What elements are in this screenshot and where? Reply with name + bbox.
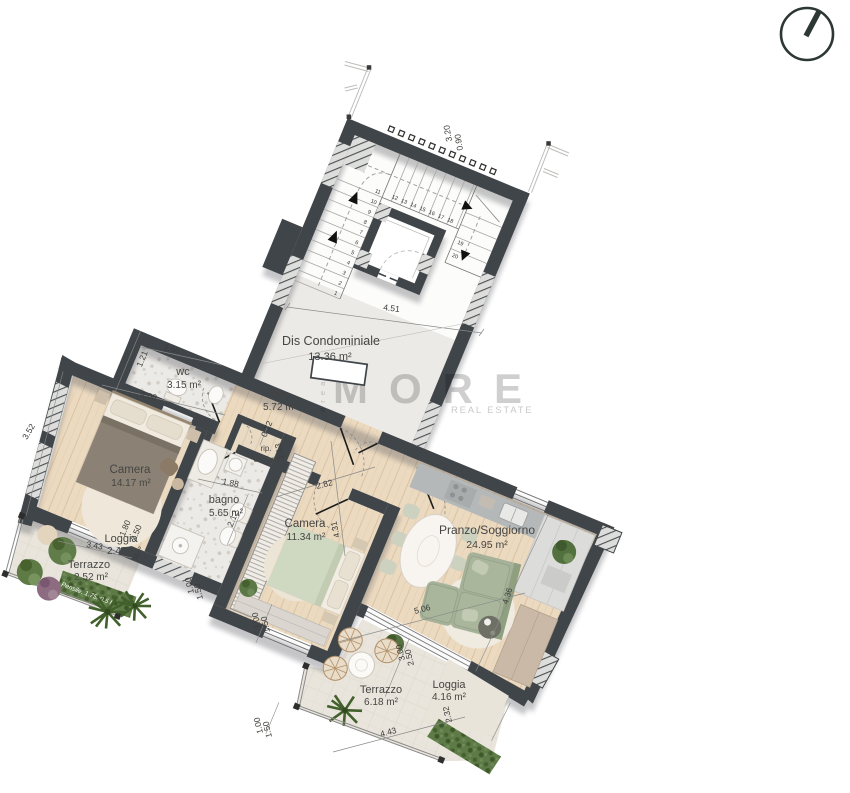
svg-text:dis: dis [271, 388, 286, 400]
svg-text:Camera: Camera [110, 464, 152, 476]
svg-text:6.18 m²: 6.18 m² [364, 697, 399, 708]
svg-text:REAL ESTATE: REAL ESTATE [451, 405, 533, 416]
svg-text:0.92 m²: 0.92 m² [253, 455, 280, 464]
svg-text:3.15 m²: 3.15 m² [167, 380, 202, 391]
svg-text:wc: wc [175, 366, 190, 378]
svg-text:13.36 m²: 13.36 m² [308, 351, 352, 363]
svg-text:5.72 m²: 5.72 m² [263, 402, 298, 413]
svg-text:4.16 m²: 4.16 m² [432, 692, 467, 703]
svg-text:Terrazzo: Terrazzo [360, 684, 402, 696]
svg-text:rip.: rip. [260, 444, 271, 453]
svg-text:Terrazzo: Terrazzo [68, 559, 110, 571]
svg-text:2.43 m²: 2.43 m² [107, 546, 142, 557]
svg-text:2.52 m²: 2.52 m² [74, 572, 109, 583]
svg-text:5.65 m²: 5.65 m² [209, 508, 244, 519]
svg-text:Camera: Camera [285, 518, 327, 530]
svg-text:14.17 m²: 14.17 m² [111, 478, 151, 489]
svg-text:bagno: bagno [209, 494, 240, 506]
svg-text:Loggia: Loggia [104, 533, 138, 545]
svg-text:24.95 m²: 24.95 m² [466, 539, 508, 551]
svg-text:Dis Condominiale: Dis Condominiale [282, 334, 380, 348]
svg-text:Loggia: Loggia [432, 679, 466, 691]
svg-text:11.34 m²: 11.34 m² [287, 532, 326, 543]
svg-text:Pranzo/Soggiorno: Pranzo/Soggiorno [439, 523, 535, 537]
